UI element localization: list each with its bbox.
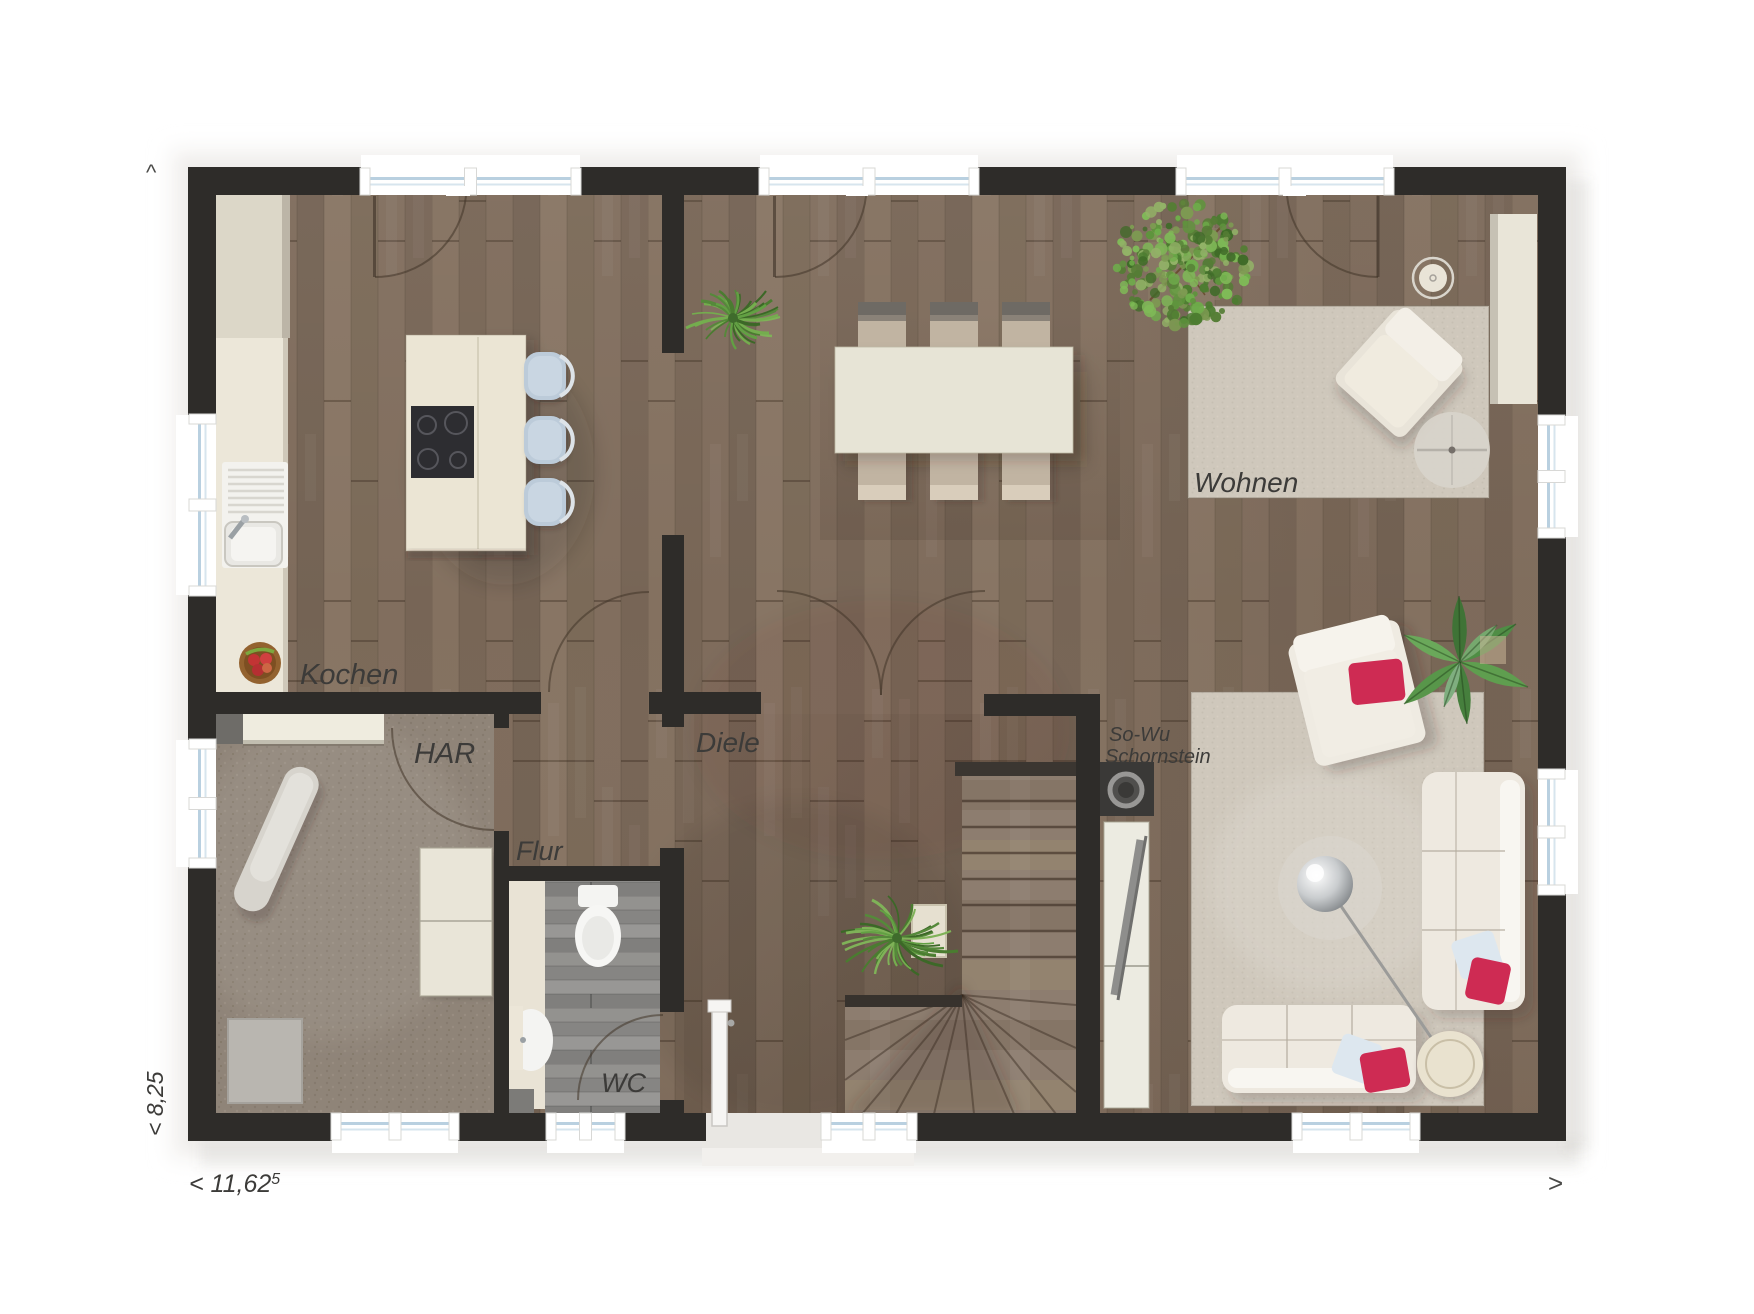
svg-text:Wohnen: Wohnen (1194, 467, 1298, 498)
svg-text:< 11,625: < 11,625 (189, 1170, 280, 1198)
svg-text:HAR: HAR (414, 738, 475, 770)
svg-text:So-Wu: So-Wu (1109, 724, 1170, 746)
svg-text:Schornstein: Schornstein (1105, 746, 1211, 768)
svg-text:^: ^ (146, 160, 157, 185)
svg-text:< 8,25: < 8,25 (142, 1071, 168, 1136)
svg-text:WC: WC (601, 1068, 646, 1098)
svg-text:Kochen: Kochen (300, 659, 398, 691)
svg-text:>: > (1548, 1168, 1563, 1198)
svg-text:Flur: Flur (516, 836, 564, 866)
svg-text:Diele: Diele (696, 727, 760, 758)
